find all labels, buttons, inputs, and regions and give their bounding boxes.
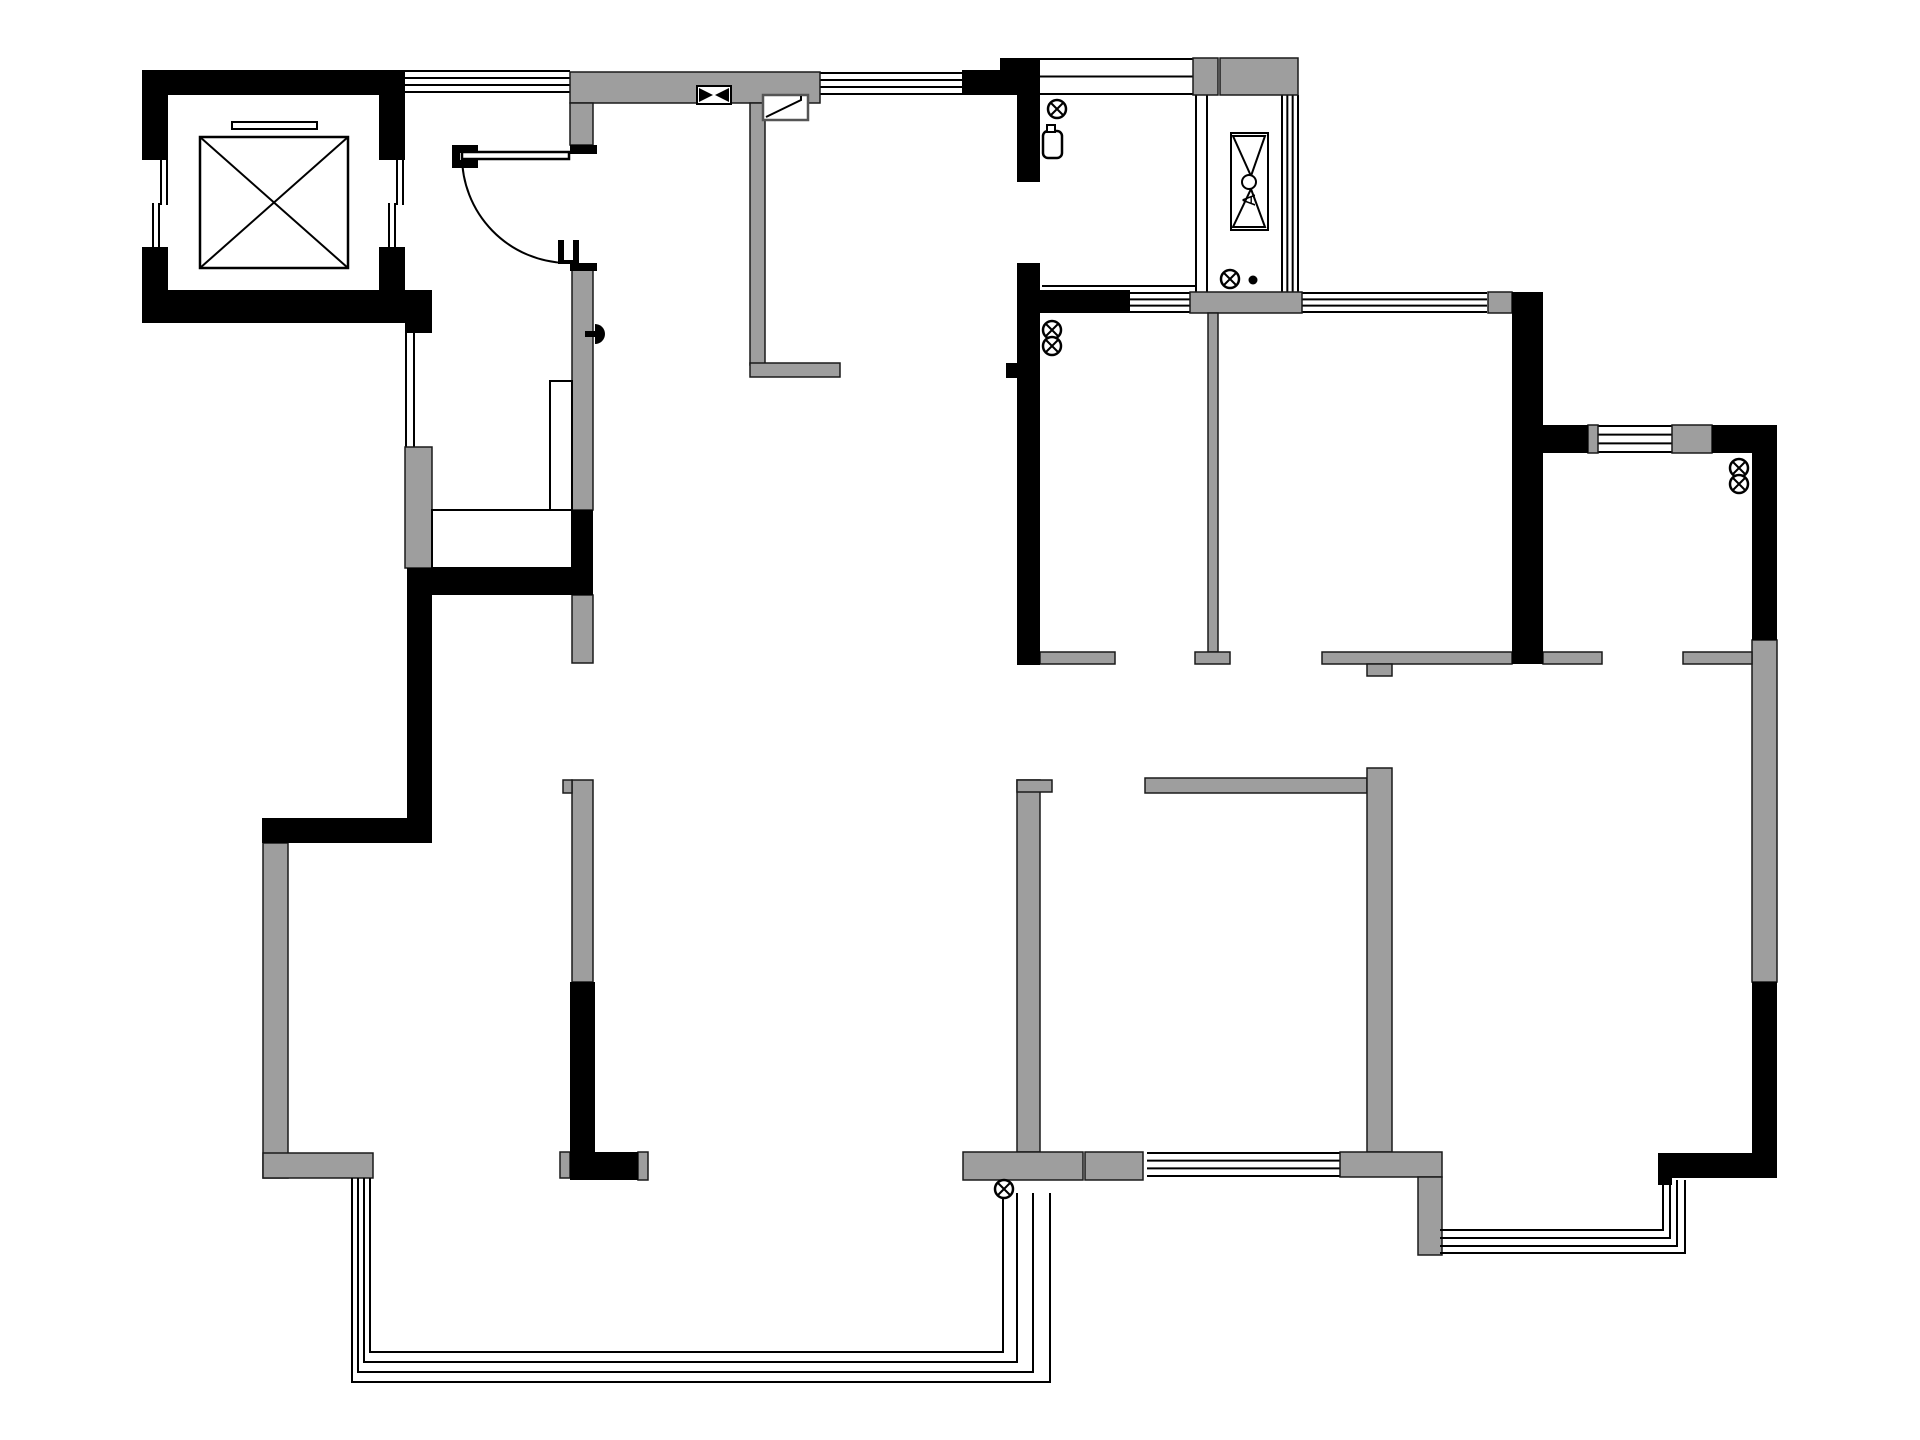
wall-segment-gray (1752, 640, 1777, 982)
window-symbol (1302, 292, 1487, 313)
wall-segment-black (407, 568, 432, 843)
air-riser-label: A (1240, 194, 1260, 206)
wall-segment-gray (1190, 292, 1302, 313)
wall-segment-gray (1193, 58, 1218, 95)
wall-segment-gray (570, 103, 593, 145)
wall-segment-black (1040, 290, 1130, 313)
wall-segment-black (1543, 425, 1588, 453)
window-bg (1302, 292, 1487, 313)
wall-segment-gray (1220, 58, 1298, 95)
wall-segment-black (1000, 58, 1040, 95)
wall-fixture-icon (1043, 131, 1062, 158)
wall-segment-black (1017, 95, 1040, 182)
crossed-circle-icon (1048, 100, 1066, 118)
wall-segment-black (570, 263, 597, 271)
wall-segment-black (262, 818, 432, 843)
wall-segment-gray (1672, 425, 1712, 453)
window-symbol (405, 333, 415, 447)
wall-segment-gray (1040, 652, 1115, 664)
wall-segment-gray (1543, 652, 1602, 664)
closet-outline (550, 381, 572, 510)
window-symbol (820, 72, 962, 95)
entry-door-hinge (452, 145, 460, 168)
window-symbol (405, 70, 570, 93)
wall-segment-black (572, 510, 593, 595)
dot-marker (1249, 276, 1258, 285)
window-symbol (1195, 95, 1208, 292)
wall-segment-gray (750, 363, 840, 377)
window-symbol (1147, 1152, 1340, 1177)
crossed-circle-icon (1043, 337, 1061, 355)
wall-fixture-nub (1047, 125, 1055, 132)
wall-segment-black (1752, 982, 1777, 1178)
wall-segment-gray (638, 1152, 648, 1180)
wall-segment-black (1512, 292, 1543, 664)
window-symbol (1130, 292, 1190, 313)
wall-segment-gray (750, 103, 765, 365)
wall-segment-gray (1085, 1152, 1143, 1180)
window-symbol (388, 203, 396, 247)
wall-segment-gray (1322, 652, 1512, 664)
wall-segment-gray (1208, 313, 1218, 652)
wall-segment-black (142, 70, 405, 95)
wall-segment-black (379, 95, 405, 160)
air-riser-circle (1242, 175, 1256, 189)
wall-segment-gray (1488, 292, 1512, 313)
floor-plan-canvas: A (0, 0, 1920, 1440)
door-handle-stem (585, 331, 595, 337)
wall-segment-gray (572, 267, 593, 510)
wall-segment-gray (1195, 652, 1230, 664)
wall-segment-gray (405, 447, 432, 568)
wall-segment-gray (563, 780, 572, 793)
wall-segment-black (570, 145, 597, 154)
window-bg (405, 70, 570, 93)
wall-segment-gray (572, 595, 593, 663)
window-symbol (1598, 425, 1672, 453)
window-bg (1130, 292, 1190, 313)
window-bg (1147, 1152, 1340, 1177)
wall-segment-gray (1367, 768, 1392, 1152)
window-symbol (152, 203, 160, 247)
wall-segment-black (1017, 263, 1040, 665)
wall-segment-gray (1017, 780, 1052, 792)
air-riser-unit: A (1231, 133, 1268, 230)
wall-segment-black (142, 290, 405, 323)
wall-segment-gray (963, 1152, 1083, 1180)
wall-segment-gray (263, 1153, 373, 1178)
wall-segment-black (1752, 453, 1777, 640)
window-bg (820, 72, 962, 95)
wall-segment-black (1712, 425, 1777, 453)
wall-segment-gray (572, 780, 593, 982)
wall-segment-gray (1588, 425, 1598, 453)
window-symbol (1040, 58, 1193, 95)
wall-segment-gray (1340, 1152, 1442, 1177)
wall-segment-black (1006, 363, 1017, 378)
wall-segment-gray (1145, 778, 1367, 793)
crossed-circle-icon (1730, 475, 1748, 493)
closet-outline (432, 510, 572, 568)
window-bg (1598, 425, 1672, 453)
wall-segment-gray (1418, 1177, 1442, 1255)
wall-segment-black (570, 1152, 638, 1180)
crossed-circle-icon (1221, 270, 1239, 288)
window-symbol (1281, 95, 1299, 292)
window-symbol (396, 160, 404, 205)
wall-segment-black (405, 290, 432, 333)
window-symbol (160, 160, 168, 205)
floor-plan-svg: A (0, 0, 1920, 1440)
wall-segment-black (379, 247, 405, 290)
wall-segment-gray (263, 843, 288, 1178)
wall-segment-black (570, 982, 595, 1180)
wall-segment-black (142, 95, 168, 160)
entry-door-jamb (558, 260, 579, 264)
wall-segment-gray (1017, 780, 1040, 1152)
wall-segment-black (1667, 1153, 1777, 1178)
wall-segment-gray (560, 1152, 570, 1178)
window-bg (1281, 95, 1299, 292)
wall-segment-black (432, 568, 590, 595)
entry-door-leaf (462, 152, 569, 159)
wall-segment-gray (1367, 664, 1392, 676)
crossed-circle-icon (995, 1180, 1013, 1198)
elevator-door-bar (232, 122, 317, 129)
elevator (200, 122, 348, 268)
wall-segment-black (142, 247, 168, 290)
wall-segment-gray (1683, 652, 1752, 664)
